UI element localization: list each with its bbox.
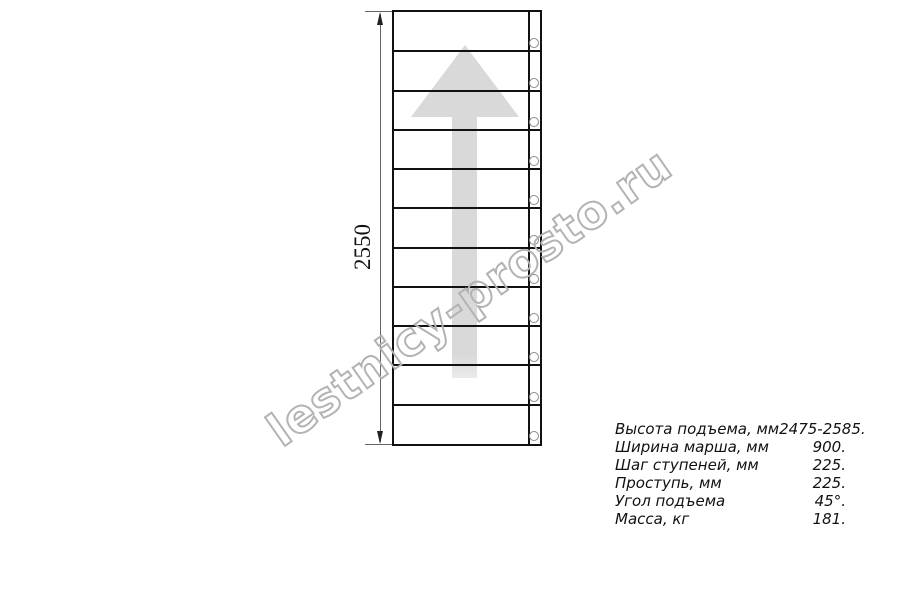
bolt-circle-icon: [529, 117, 539, 127]
bolt-circle-icon: [529, 38, 539, 48]
bolt-circle-icon: [529, 235, 539, 245]
step-line: [394, 207, 540, 209]
spec-value: 45°.: [815, 492, 846, 510]
up-direction-arrow-head-icon: [411, 45, 519, 117]
step-line: [394, 247, 540, 249]
spec-row: Масса, кг 181.: [615, 510, 846, 528]
spec-value: 181.: [813, 510, 846, 528]
dimension-label: 2550: [351, 202, 375, 292]
step-line: [394, 404, 540, 406]
step-line: [394, 129, 540, 131]
spec-label: Ширина марша, мм: [615, 438, 769, 456]
spec-value: 225.: [813, 456, 846, 474]
spec-row: Угол подъема 45°.: [615, 492, 846, 510]
spec-value: 2475-2585.: [779, 420, 866, 438]
step-line: [394, 286, 540, 288]
bolt-circle-icon: [529, 195, 539, 205]
dimension-extension-line-bottom: [365, 444, 393, 445]
dimension-arrow-up-icon: [377, 12, 383, 25]
bolt-circle-icon: [529, 392, 539, 402]
bolt-circle-icon: [529, 431, 539, 441]
bolt-circle-icon: [529, 274, 539, 284]
spec-row: Ширина марша, мм 900.: [615, 438, 846, 456]
spec-value: 900.: [813, 438, 846, 456]
spec-row: Проступь, мм 225.: [615, 474, 846, 492]
step-line: [394, 364, 540, 366]
step-line: [394, 168, 540, 170]
staircase-diagram-page: 2550 lestnicy-prosto.ru Высота подъема, …: [0, 0, 900, 600]
step-line: [394, 50, 540, 52]
stairs-inner: [394, 12, 540, 444]
specs-table: Высота подъема, мм 2475-2585. Ширина мар…: [615, 420, 846, 528]
dimension-line: [380, 14, 381, 442]
spec-value: 225.: [813, 474, 846, 492]
step-line: [394, 90, 540, 92]
spec-row: Высота подъема, мм 2475-2585.: [615, 420, 846, 438]
spec-label: Масса, кг: [615, 510, 689, 528]
bolt-circle-icon: [529, 78, 539, 88]
dimension-arrow-down-icon: [377, 431, 383, 444]
bolt-circle-icon: [529, 156, 539, 166]
spec-label: Шаг ступеней, мм: [615, 456, 759, 474]
stairs-plan-drawing: [392, 10, 542, 446]
spec-row: Шаг ступеней, мм 225.: [615, 456, 846, 474]
bolt-circle-icon: [529, 313, 539, 323]
spec-label: Высота подъема, мм: [615, 420, 779, 438]
bolt-circle-icon: [529, 352, 539, 362]
spec-label: Угол подъема: [615, 492, 725, 510]
spec-label: Проступь, мм: [615, 474, 722, 492]
step-line: [394, 325, 540, 327]
stringer-column-line: [528, 12, 530, 444]
